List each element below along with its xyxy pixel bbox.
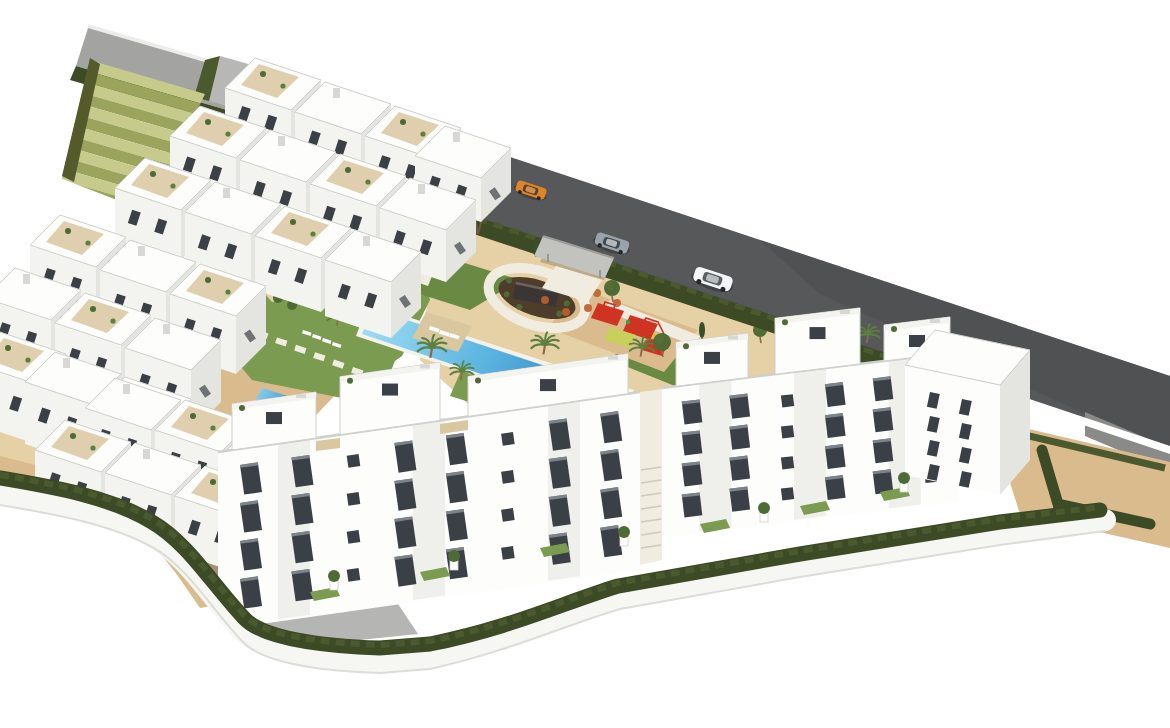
roof-plant bbox=[239, 405, 245, 411]
terrace-plant bbox=[70, 433, 76, 439]
planter-topiary bbox=[328, 570, 340, 582]
penthouse-window bbox=[810, 327, 826, 339]
roof-stair-box bbox=[23, 274, 30, 284]
terrace-plant bbox=[225, 131, 230, 136]
terrace-plant bbox=[150, 171, 156, 177]
palm-fronds bbox=[450, 361, 473, 375]
window-small bbox=[347, 568, 361, 582]
roof-stair-box bbox=[223, 188, 230, 198]
terrace-plant bbox=[170, 183, 175, 188]
terrace-plant bbox=[110, 318, 115, 323]
orange-shrub bbox=[541, 296, 549, 304]
palm-fronds bbox=[630, 337, 655, 351]
planter-topiary bbox=[618, 526, 630, 538]
roof-plant bbox=[891, 326, 897, 332]
terrace-plant bbox=[5, 345, 11, 351]
playground-detail bbox=[626, 320, 630, 324]
render-stage bbox=[0, 0, 1170, 728]
roof-plant bbox=[347, 378, 353, 384]
roof-stair-box bbox=[333, 88, 340, 98]
roof-stair-box bbox=[138, 246, 145, 256]
window-small bbox=[781, 456, 794, 469]
tree-trunk bbox=[612, 296, 613, 302]
window-small bbox=[347, 492, 361, 506]
roof-stair-box bbox=[63, 358, 70, 368]
window-small bbox=[347, 530, 361, 544]
terrace-plant bbox=[400, 119, 406, 125]
roof-furniture bbox=[608, 356, 618, 360]
tree-canopy-light bbox=[654, 334, 664, 344]
orange-shrub bbox=[584, 304, 592, 312]
roof-stair-box bbox=[453, 132, 460, 142]
penthouse-window bbox=[540, 379, 556, 391]
cypress-tree bbox=[699, 322, 705, 338]
far-block-front bbox=[905, 365, 1000, 495]
palm-fronds bbox=[531, 332, 558, 348]
roof-plant bbox=[475, 377, 481, 383]
tree-trunk bbox=[662, 351, 663, 357]
penthouse-box bbox=[676, 334, 748, 387]
terrace-plant bbox=[85, 240, 90, 245]
tree-canopy-light bbox=[605, 281, 614, 290]
terrace-plant bbox=[310, 231, 315, 236]
terrace-plant bbox=[365, 179, 370, 184]
balcony-recess bbox=[794, 366, 826, 520]
terrace-plant bbox=[190, 413, 196, 419]
window-small bbox=[347, 454, 361, 468]
orange-shrub bbox=[562, 308, 570, 316]
terrace-plant bbox=[225, 289, 230, 294]
window-small bbox=[501, 546, 515, 560]
penthouse-window bbox=[704, 352, 720, 364]
terrace-plant bbox=[90, 445, 95, 450]
roof-furniture bbox=[728, 336, 738, 340]
tree-trunk bbox=[760, 337, 761, 343]
terrace-plant bbox=[210, 479, 216, 485]
window-small bbox=[781, 394, 794, 407]
terrace-plant bbox=[90, 306, 96, 312]
terrace-plant bbox=[65, 228, 71, 234]
terrace-plant bbox=[210, 425, 215, 430]
window-small bbox=[501, 508, 515, 522]
terrace-plant bbox=[290, 219, 296, 225]
roof-stair-box bbox=[418, 184, 425, 194]
terrace-plant bbox=[205, 277, 211, 283]
penthouse-window bbox=[382, 384, 398, 396]
terrace-plant bbox=[25, 357, 30, 362]
aerial-render bbox=[0, 0, 1170, 728]
roof-furniture bbox=[296, 394, 306, 398]
building-far-right bbox=[905, 330, 1030, 495]
terrace-plant bbox=[280, 83, 285, 88]
palm-fronds bbox=[418, 335, 447, 352]
roof-stair-box bbox=[143, 449, 150, 459]
roof-furniture bbox=[930, 319, 940, 323]
stair-alley bbox=[640, 389, 662, 565]
roof-furniture bbox=[840, 310, 850, 314]
planter-topiary bbox=[758, 502, 770, 514]
window-small bbox=[501, 470, 515, 484]
roof-stair-box bbox=[163, 324, 170, 334]
roof-stair-box bbox=[363, 236, 370, 246]
window-small bbox=[781, 425, 794, 438]
penthouse-window bbox=[266, 412, 282, 424]
terrace-plant bbox=[345, 167, 351, 173]
roof-furniture bbox=[420, 364, 430, 368]
window-small bbox=[501, 432, 515, 446]
terrace-plant bbox=[205, 119, 211, 125]
penthouse-box bbox=[775, 308, 860, 374]
balcony-recess bbox=[699, 378, 731, 532]
terrace-plant bbox=[420, 131, 425, 136]
roof-stair-box bbox=[278, 136, 285, 146]
planter-topiary bbox=[898, 472, 910, 484]
roof-plant bbox=[782, 319, 788, 325]
roof-stair-box bbox=[123, 384, 130, 394]
roof-plant bbox=[683, 343, 689, 349]
terrace-plant bbox=[260, 71, 266, 77]
planter-topiary bbox=[448, 550, 460, 562]
window-small bbox=[781, 487, 794, 500]
